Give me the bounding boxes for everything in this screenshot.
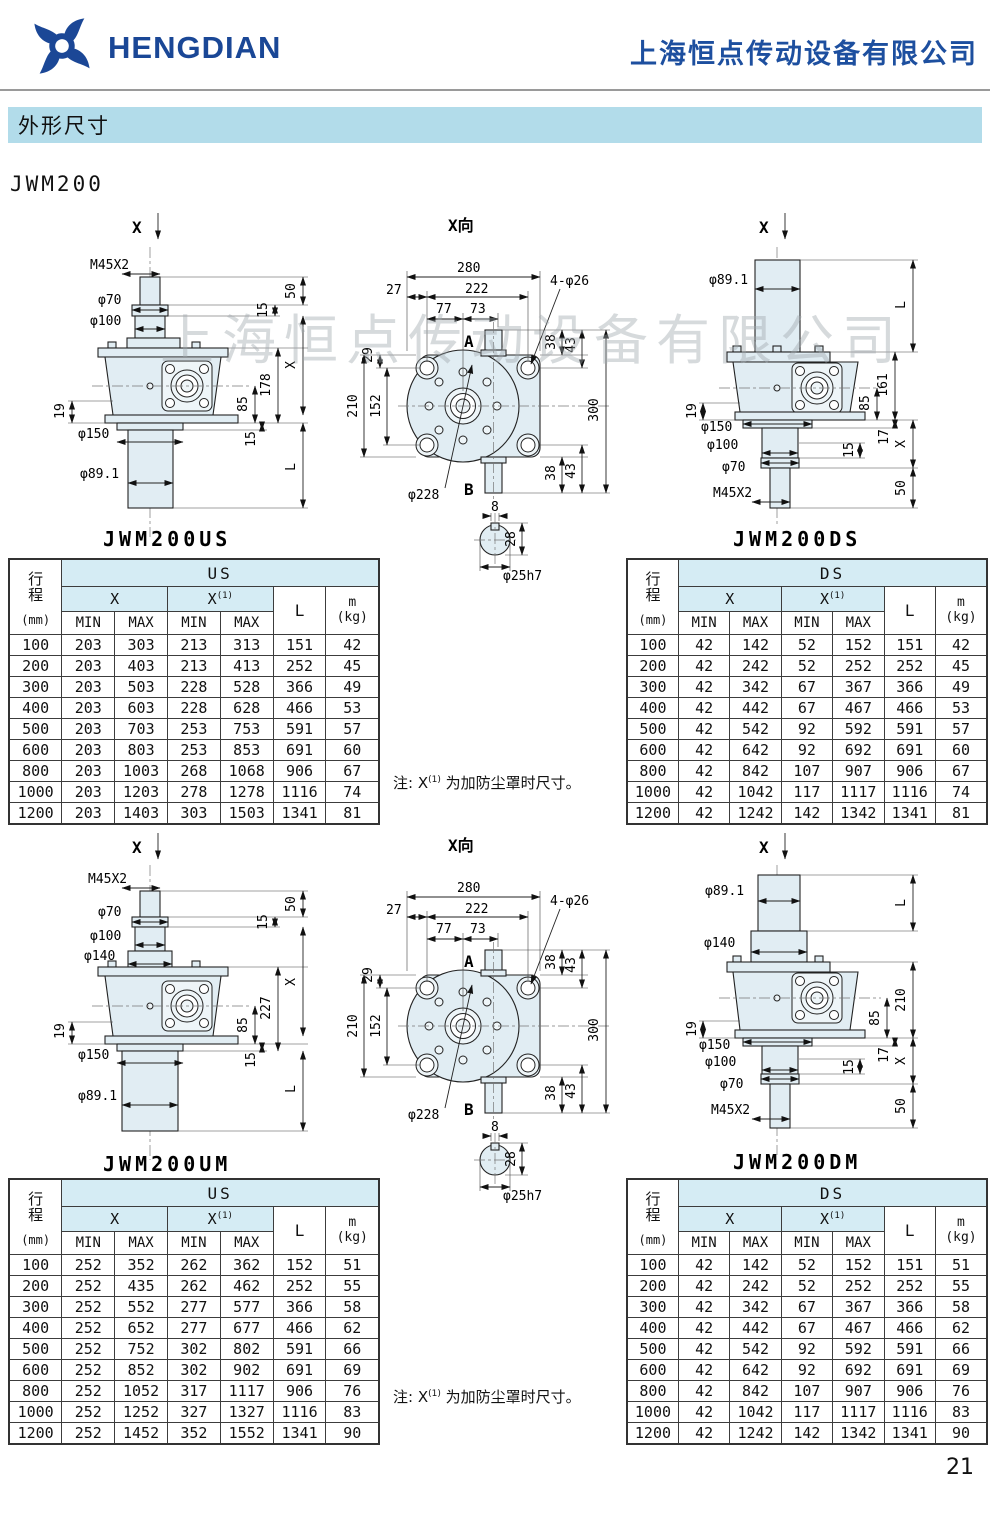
table-row: 300423426736736658 (627, 1297, 987, 1318)
table-cell: 692 (833, 1360, 884, 1381)
dim-label: φ70 (722, 460, 745, 475)
table-cell: 42 (678, 803, 729, 825)
stroke-label: 程 (10, 587, 61, 604)
dim-label: 210 (894, 988, 909, 1011)
group-header: DS (678, 559, 987, 587)
stroke-label: 行 (10, 1191, 61, 1208)
x1-header: X(1) (167, 1207, 273, 1232)
table-row: 40025265227767746662 (9, 1318, 379, 1339)
table-ds-bottom: 行程 (mm) DS X X(1) L m(kg) MIN MAX MIN MA… (626, 1178, 988, 1445)
x-header: X (62, 587, 168, 612)
dim-label: L (284, 463, 299, 471)
table-cell: 69 (935, 1360, 987, 1381)
table-cell: 74 (935, 782, 987, 803)
dim-label: 43 (564, 463, 579, 479)
table-row: 50025275230280259166 (9, 1339, 379, 1360)
drawing-caption: JWM200UM (103, 1152, 231, 1176)
stroke-unit: (mm) (628, 613, 678, 627)
table-cell: 252 (884, 656, 935, 677)
table-cell: 642 (730, 740, 781, 761)
dim-label: 85 (236, 396, 251, 412)
x-header: X (62, 1207, 168, 1232)
dim-label: 43 (564, 957, 579, 973)
page-number: 21 (946, 1455, 974, 1480)
table-cell: 1000 (627, 1402, 678, 1423)
table-cell: 100 (627, 635, 678, 656)
table-cell: 400 (627, 698, 678, 719)
table-cell: 268 (167, 761, 220, 782)
table-cell: 300 (627, 677, 678, 698)
dim-label: 15 (842, 1059, 857, 1075)
table-cell: 253 (167, 719, 220, 740)
dim-label: 29 (361, 967, 376, 983)
dim-label: 17 (877, 1047, 892, 1063)
table-cell: 42 (678, 1402, 729, 1423)
table-cell: 1341 (273, 803, 326, 825)
table-cell: 58 (935, 1297, 987, 1318)
dim-label: 4-φ26 (550, 274, 589, 289)
dim-label: φ140 (84, 949, 115, 964)
table-cell: 100 (9, 635, 62, 656)
dim-label: L (894, 301, 909, 309)
table-cell: 203 (62, 635, 115, 656)
table-cell: 76 (935, 1381, 987, 1402)
table-cell: 800 (9, 761, 62, 782)
table-cell: 74 (326, 782, 379, 803)
table-cell: 203 (62, 782, 115, 803)
table-cell: 1341 (884, 803, 935, 825)
table-cell: 367 (833, 1297, 884, 1318)
table-cell: 252 (62, 1318, 115, 1339)
dim-label: 210 (346, 394, 361, 417)
dim-label: 227 (259, 996, 274, 1019)
table-cell: 303 (115, 635, 168, 656)
table-cell: 92 (781, 1339, 832, 1360)
table-cell: 1200 (627, 1423, 678, 1445)
table-cell: 1342 (833, 1423, 884, 1445)
dim-label: 300 (587, 1018, 602, 1041)
max-header: MAX (833, 1232, 884, 1255)
table-cell: 366 (273, 1297, 326, 1318)
table-cell: 67 (781, 677, 832, 698)
table-cell: 366 (884, 1297, 935, 1318)
dim-label: 38 (544, 954, 559, 970)
table-cell: 1242 (730, 1423, 781, 1445)
table-cell: 49 (935, 677, 987, 698)
table-cell: 203 (62, 656, 115, 677)
table-cell: 76 (326, 1381, 379, 1402)
stroke-unit: (mm) (628, 1233, 678, 1247)
dim-label: φ70 (98, 293, 121, 308)
table-cell: 213 (167, 656, 220, 677)
table-cell: 142 (781, 803, 832, 825)
dim-label: M45X2 (711, 1103, 750, 1118)
table-cell: 852 (115, 1360, 168, 1381)
dim-label: φ150 (699, 1038, 730, 1053)
table-row: 200422425225225255 (627, 1276, 987, 1297)
table-cell: 42 (678, 656, 729, 677)
table-cell: 552 (115, 1297, 168, 1318)
table-cell: 62 (935, 1318, 987, 1339)
table-cell: 1278 (220, 782, 273, 803)
table-cell: 1200 (9, 803, 62, 825)
table-cell: 100 (627, 1255, 678, 1276)
stroke-column-header: 行程 (mm) (627, 559, 678, 635)
dim-label: X (284, 978, 299, 986)
table-cell: 278 (167, 782, 220, 803)
table-row: 30025255227757736658 (9, 1297, 379, 1318)
table-row: 10025235226236215251 (9, 1255, 379, 1276)
table-cell: 42 (678, 677, 729, 698)
table-cell: 66 (935, 1339, 987, 1360)
dim-label: 38 (544, 465, 559, 481)
dim-label: 29 (361, 347, 376, 363)
table-row: 12004212421421342134181 (627, 803, 987, 825)
table-cell: 107 (781, 1381, 832, 1402)
table-cell: 203 (62, 698, 115, 719)
dim-label: X (894, 440, 909, 448)
m-header: m(kg) (326, 1207, 379, 1255)
table-cell: 66 (326, 1339, 379, 1360)
table-cell: 1403 (115, 803, 168, 825)
table-cell: 42 (678, 1297, 729, 1318)
dim-label: 27 (386, 903, 402, 918)
table-cell: 800 (627, 1381, 678, 1402)
table-cell: 352 (167, 1423, 220, 1445)
stroke-label: 程 (628, 1207, 678, 1224)
stroke-column-header: 行程 (mm) (627, 1179, 678, 1255)
table-cell: 151 (884, 635, 935, 656)
drawing-jwm200ds: X φ89.1 19 φ150 φ100 φ70 (655, 205, 985, 555)
table-cell: 1452 (115, 1423, 168, 1445)
dim-label: 77 (436, 922, 452, 937)
dim-label: φ100 (705, 1055, 736, 1070)
table-cell: 577 (220, 1297, 273, 1318)
table-cell: 907 (833, 761, 884, 782)
table-cell: 327 (167, 1402, 220, 1423)
min-header: MIN (781, 612, 832, 635)
stroke-unit: (mm) (10, 613, 61, 627)
table-row: 100020312032781278111674 (9, 782, 379, 803)
l-header: L (273, 587, 326, 635)
table-cell: 467 (833, 1318, 884, 1339)
table-cell: 117 (781, 782, 832, 803)
table-cell: 42 (678, 635, 729, 656)
table-row: 100025212523271327111683 (9, 1402, 379, 1423)
m-header: m(kg) (326, 587, 379, 635)
worm-shaft-detail: 8 28 φ25h7 (474, 1120, 542, 1204)
x-direction-label: X (759, 218, 769, 237)
dim-label: 43 (564, 337, 579, 353)
table-cell: 252 (62, 1276, 115, 1297)
table-cell: 500 (9, 1339, 62, 1360)
table-cell: 1000 (9, 1402, 62, 1423)
table-cell: 1052 (115, 1381, 168, 1402)
table-row: 8002031003268106890667 (9, 761, 379, 782)
min-header: MIN (781, 1232, 832, 1255)
table-cell: 342 (730, 1297, 781, 1318)
table-cell: 228 (167, 677, 220, 698)
group-header: DS (678, 1179, 987, 1207)
table-cell: 1117 (220, 1381, 273, 1402)
table-cell: 142 (730, 635, 781, 656)
max-header: MAX (115, 612, 168, 635)
table-row: 40020360322862846653 (9, 698, 379, 719)
table-cell: 58 (326, 1297, 379, 1318)
dim-label: φ228 (408, 488, 439, 503)
dim-label: 152 (369, 394, 384, 417)
table-cell: 1003 (115, 761, 168, 782)
table-cell: 906 (884, 761, 935, 782)
table-ds-top: 行程 (mm) DS X X(1) L m(kg) MIN MAX MIN MA… (626, 558, 988, 825)
shaft-a-label: A (464, 332, 474, 351)
table-cell: 591 (273, 719, 326, 740)
dim-label: 280 (457, 881, 480, 896)
table-cell: 277 (167, 1318, 220, 1339)
table-cell: 203 (62, 677, 115, 698)
table-cell: 317 (167, 1381, 220, 1402)
table-cell: 83 (326, 1402, 379, 1423)
m-header: m(kg) (935, 587, 987, 635)
x1-header: X(1) (781, 587, 884, 612)
table-cell: 542 (730, 719, 781, 740)
m-header: m(kg) (935, 1207, 987, 1255)
dim-label: 15 (842, 442, 857, 458)
table-cell: 252 (833, 1276, 884, 1297)
table-cell: 500 (627, 1339, 678, 1360)
table-cell: 42 (678, 1318, 729, 1339)
table-cell: 55 (326, 1276, 379, 1297)
table-cell: 45 (935, 656, 987, 677)
table-cell: 366 (273, 677, 326, 698)
table-cell: 252 (273, 656, 326, 677)
dim-label: 17 (877, 429, 892, 445)
table-cell: 907 (833, 1381, 884, 1402)
pinwheel-logo-icon (28, 12, 96, 80)
table-cell: 902 (220, 1360, 273, 1381)
table-cell: 803 (115, 740, 168, 761)
table-cell: 591 (273, 1339, 326, 1360)
dim-label: 15 (256, 302, 271, 318)
table-cell: 203 (62, 740, 115, 761)
dim-label: 28 (504, 531, 519, 547)
x1-header: X(1) (781, 1207, 884, 1232)
l-header: L (884, 1207, 935, 1255)
table-cell: 466 (884, 1318, 935, 1339)
table-cell: 642 (730, 1360, 781, 1381)
table-cell: 413 (220, 656, 273, 677)
table-cell: 67 (326, 761, 379, 782)
table-cell: 252 (62, 1402, 115, 1423)
table-cell: 252 (884, 1276, 935, 1297)
dim-label: 85 (868, 1010, 883, 1026)
table-cell: 67 (935, 761, 987, 782)
dim-label: 77 (436, 302, 452, 317)
table-cell: 252 (62, 1381, 115, 1402)
stroke-unit: (mm) (10, 1233, 61, 1247)
table-cell: 252 (62, 1297, 115, 1318)
x-direction-label: X (759, 838, 769, 857)
logo-blades (20, 4, 104, 88)
table-row: 10020330321331315142 (9, 635, 379, 656)
table-cell: 200 (627, 1276, 678, 1297)
table-cell: 462 (220, 1276, 273, 1297)
table-cell: 752 (115, 1339, 168, 1360)
table-cell: 42 (678, 1255, 729, 1276)
dim-label: M45X2 (90, 258, 129, 273)
dim-label: L (284, 1085, 299, 1093)
table-cell: 542 (730, 1339, 781, 1360)
table-cell: 600 (9, 1360, 62, 1381)
table-cell: 117 (781, 1402, 832, 1423)
table-cell: 262 (167, 1276, 220, 1297)
model-label: JWM200 (10, 172, 104, 196)
table-row: 30020350322852836649 (9, 677, 379, 698)
dim-label: 50 (284, 283, 299, 299)
header-divider (0, 89, 990, 91)
table-cell: 1200 (9, 1423, 62, 1445)
table-cell: 342 (730, 677, 781, 698)
x-direction-label: X (132, 838, 142, 857)
dim-label: 19 (685, 1021, 700, 1037)
drawing-jwm200dm: X φ89.1 φ140 19 φ150 φ100 (655, 825, 985, 1180)
table-row: 10004210421171117111683 (627, 1402, 987, 1423)
table-cell: 1342 (833, 803, 884, 825)
dim-label: φ89.1 (705, 884, 744, 899)
table-cell: 703 (115, 719, 168, 740)
table-row: 20025243526246225255 (9, 1276, 379, 1297)
table-cell: 52 (781, 1276, 832, 1297)
table-row: 100421425215215151 (627, 1255, 987, 1276)
min-header: MIN (167, 612, 220, 635)
dim-label: φ89.1 (78, 1089, 117, 1104)
table-cell: 151 (273, 635, 326, 656)
table-cell: 853 (220, 740, 273, 761)
table-cell: 81 (935, 803, 987, 825)
table-cell: 42 (678, 698, 729, 719)
company-name: 上海恒点传动设备有限公司 (630, 32, 978, 71)
dim-label: 4-φ26 (550, 894, 589, 909)
table-cell: 802 (220, 1339, 273, 1360)
dim-label: 43 (564, 1083, 579, 1099)
table-row: 60020380325385369160 (9, 740, 379, 761)
dim-label: φ150 (701, 420, 732, 435)
dim-label: 19 (53, 403, 68, 419)
table-cell: 628 (220, 698, 273, 719)
dim-label: X (894, 1057, 909, 1065)
dim-label: 50 (284, 896, 299, 912)
dim-label: 210 (346, 1014, 361, 1037)
table-us-bottom: 行程 (mm) US X X(1) L m(kg) MIN MAX MIN MA… (8, 1178, 380, 1445)
table-cell: 200 (627, 656, 678, 677)
stroke-label: 行 (628, 571, 678, 588)
table-cell: 591 (884, 719, 935, 740)
min-header: MIN (62, 612, 115, 635)
table-cell: 367 (833, 677, 884, 698)
section-title: 外形尺寸 (8, 110, 110, 140)
table-row: 8004284210790790676 (627, 1381, 987, 1402)
table-cell: 90 (935, 1423, 987, 1445)
table-row: 50020370325375359157 (9, 719, 379, 740)
table-cell: 203 (62, 719, 115, 740)
table-cell: 200 (9, 1276, 62, 1297)
table-cell: 591 (884, 1339, 935, 1360)
table-cell: 842 (730, 1381, 781, 1402)
table-cell: 57 (935, 719, 987, 740)
dim-label: 73 (470, 922, 486, 937)
company-logo (28, 12, 96, 84)
table-cell: 252 (833, 656, 884, 677)
table-cell: 300 (627, 1297, 678, 1318)
dim-label: 222 (465, 902, 488, 917)
table-cell: 100 (9, 1255, 62, 1276)
table-cell: 152 (273, 1255, 326, 1276)
table-row: 200422425225225245 (627, 656, 987, 677)
table-cell: 691 (884, 740, 935, 761)
table-cell: 213 (167, 635, 220, 656)
table-cell: 49 (326, 677, 379, 698)
table-cell: 1242 (730, 803, 781, 825)
note-dust-cover-1: 注: X(1) 为加防尘罩时尺寸。 (393, 772, 581, 793)
dim-label: 50 (894, 480, 909, 496)
table-cell: 753 (220, 719, 273, 740)
drawing-jwm200us: X M45X2 φ70 φ100 φ150 φ89.1 19 (10, 205, 340, 555)
table-cell: 42 (678, 1339, 729, 1360)
worm-shaft-detail: 8 28 φ25h7 (474, 500, 542, 584)
table-cell: 528 (220, 677, 273, 698)
max-header: MAX (730, 1232, 781, 1255)
min-header: MIN (678, 612, 729, 635)
table-cell: 500 (9, 719, 62, 740)
stroke-column-header: 行程 (mm) (9, 559, 62, 635)
table-row: 8002521052317111790676 (9, 1381, 379, 1402)
table-cell: 692 (833, 740, 884, 761)
table-cell: 362 (220, 1255, 273, 1276)
table-cell: 1341 (273, 1423, 326, 1445)
table-cell: 252 (62, 1360, 115, 1381)
table-cell: 60 (935, 740, 987, 761)
stroke-label: 程 (628, 587, 678, 604)
dim-label: 73 (470, 302, 486, 317)
table-cell: 600 (9, 740, 62, 761)
group-header: US (62, 1179, 379, 1207)
dim-label: 8 (491, 1120, 499, 1135)
dim-label: L (894, 899, 909, 907)
table-cell: 51 (326, 1255, 379, 1276)
table-cell: 1068 (220, 761, 273, 782)
table-cell: 45 (326, 656, 379, 677)
section-banner: 外形尺寸 (8, 107, 982, 143)
table-cell: 62 (326, 1318, 379, 1339)
dim-label: φ70 (720, 1077, 743, 1092)
table-row: 8004284210790790667 (627, 761, 987, 782)
group-header: US (62, 559, 379, 587)
table-cell: 92 (781, 740, 832, 761)
table-cell: 262 (167, 1255, 220, 1276)
table-cell: 277 (167, 1297, 220, 1318)
table-row: 12004212421421342134190 (627, 1423, 987, 1445)
table-row: 500425429259259157 (627, 719, 987, 740)
table-cell: 253 (167, 740, 220, 761)
gearbox-face (398, 942, 612, 1121)
table-cell: 1327 (220, 1402, 273, 1423)
dim-label: φ100 (707, 438, 738, 453)
dim-label: φ89.1 (709, 273, 748, 288)
l-header: L (273, 1207, 326, 1255)
table-cell: 242 (730, 1276, 781, 1297)
table-cell: 592 (833, 1339, 884, 1360)
table-cell: 1000 (9, 782, 62, 803)
